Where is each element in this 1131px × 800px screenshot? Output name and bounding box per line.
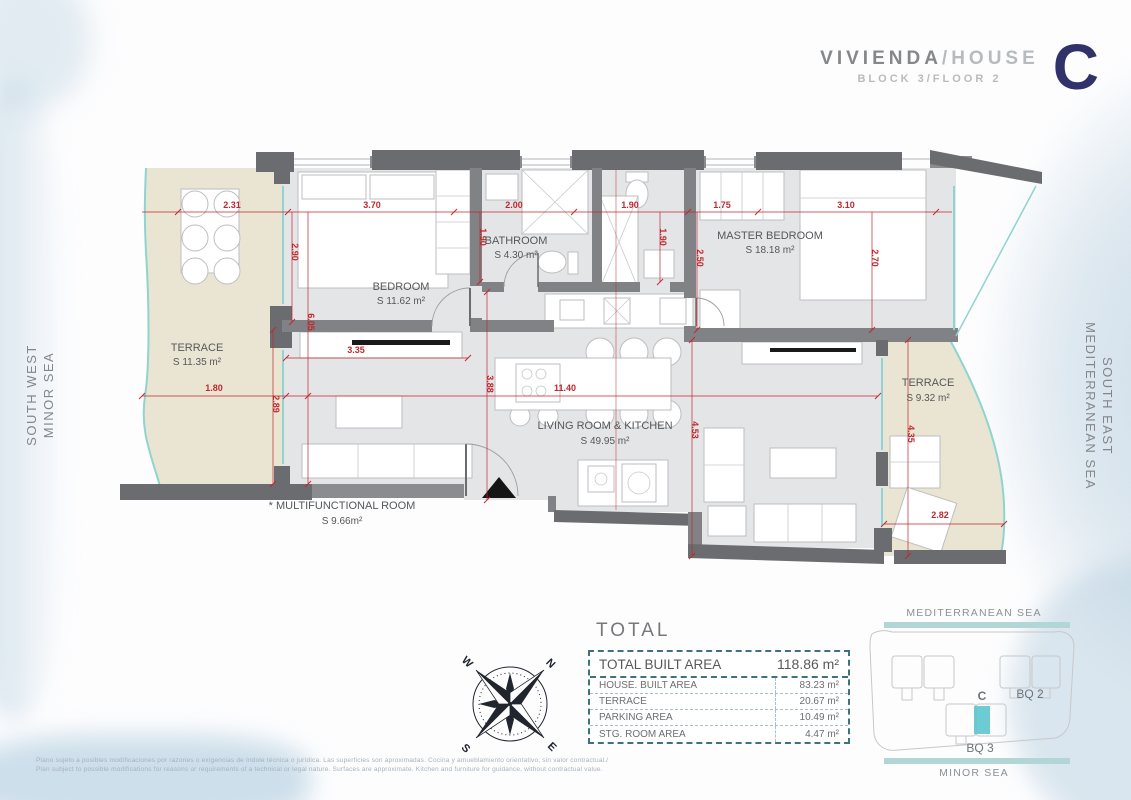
dim-master-w2: 3.10 xyxy=(837,200,855,210)
dim-terrace-l-w2: 1.80 xyxy=(205,383,223,393)
bathroom-label: BATHROOM xyxy=(485,235,548,247)
parking-area-value: 10.49 m² xyxy=(775,710,839,725)
total-built-area-value: 118.86 m² xyxy=(777,656,839,672)
map-block3-label: BQ 3 xyxy=(966,741,994,755)
bedroom-bed xyxy=(298,172,448,288)
dim-terrace-r-w: 2.82 xyxy=(931,510,949,520)
dim-master-h2: 2.70 xyxy=(870,249,880,267)
disclaimer-line-en: Plan subject to possible modifications f… xyxy=(36,765,696,774)
map-top-sea-label: MEDITERRANEAN SEA xyxy=(906,607,1041,619)
compass-west-label: W xyxy=(459,654,475,670)
dim-bedroom-h: 2.90 xyxy=(290,243,300,261)
dim-multi-h: 2.89 xyxy=(271,395,281,413)
storage-area-label: STG. ROOM AREA xyxy=(599,729,686,740)
kitchen-counter xyxy=(545,294,693,328)
living-sideboard xyxy=(742,342,862,364)
dim-hall-h: 1.90 xyxy=(658,228,668,246)
compass-north-label: N xyxy=(543,657,557,671)
bedroom-wardrobe xyxy=(436,170,470,274)
map-unit-label: C xyxy=(978,689,987,703)
disclaimer-line-es: Plano sujeto a posibles modificaciones p… xyxy=(36,756,696,765)
dim-master-h1: 2.50 xyxy=(695,249,705,267)
dim-hall-w: 1.90 xyxy=(621,200,639,210)
disclaimer: Plano sujeto a posibles modificaciones p… xyxy=(36,756,696,774)
map-bottom-sea-label: MINOR SEA xyxy=(939,767,1009,779)
dim-shelf-w: 3.35 xyxy=(347,345,365,355)
terrace-left-area-label: S 11.35 m² xyxy=(173,357,222,368)
map-block2-label: BQ 2 xyxy=(1016,687,1044,701)
house-built-area-row: HOUSE. BUILT AREA 83.23 m² xyxy=(590,678,848,694)
living-room-label: LIVING ROOM & KITCHEN xyxy=(537,420,672,432)
dim-terrace-w: 2.31 xyxy=(223,200,241,210)
site-location-map: MEDITERRANEAN SEA C BQ 2 BQ 3 MINOR SEA xyxy=(858,600,1098,800)
house-built-area-label: HOUSE. BUILT AREA xyxy=(599,680,697,691)
map-top-sea-bar xyxy=(884,622,1070,628)
master-bedroom-label: MASTER BEDROOM xyxy=(717,230,823,242)
terrace-right-area-label: S 9.32 m² xyxy=(906,393,950,404)
house-built-area-value: 83.23 m² xyxy=(775,678,839,693)
living-room-area-label: S 49.95 m² xyxy=(581,436,631,447)
parking-area-label: PARKING AREA xyxy=(599,712,673,723)
bedroom-area-label: S 11.62 m² xyxy=(377,296,426,307)
parking-area-row: PARKING AREA 10.49 m² xyxy=(590,710,848,726)
terrace-area-label: TERRACE xyxy=(599,696,647,707)
storage-area-row: STG. ROOM AREA 4.47 m² xyxy=(590,726,848,742)
terrace-right-label: TERRACE xyxy=(902,377,955,389)
totals-heading: TOTAL xyxy=(596,620,850,642)
floor-plan-page: VIVIENDA/HOUSE BLOCK 3/FLOOR 2 C SOUTH W… xyxy=(0,0,1131,800)
storage-area-value: 4.47 m² xyxy=(775,726,839,742)
diagonal-glass-edge xyxy=(956,186,1036,336)
dim-living-w: 11.40 xyxy=(554,383,576,393)
compass-south-label: S xyxy=(459,742,473,756)
terrace-area-row: TERRACE 20.67 m² xyxy=(590,694,848,710)
bathroom-area-label: S 4.30 m² xyxy=(494,250,538,261)
totals-section: TOTAL TOTAL BUILT AREA 118.86 m² HOUSE. … xyxy=(588,620,850,744)
total-built-area-row: TOTAL BUILT AREA 118.86 m² xyxy=(590,652,848,678)
bedroom-sideboard xyxy=(300,332,462,358)
terrace-area-value: 20.67 m² xyxy=(775,694,839,709)
compass-east-label: E xyxy=(545,740,559,754)
dim-living-h1: 3.88 xyxy=(485,375,495,393)
bedroom-label: BEDROOM xyxy=(373,281,430,293)
map-bottom-sea-bar xyxy=(884,758,1070,764)
totals-table: TOTAL BUILT AREA 118.86 m² HOUSE. BUILT … xyxy=(588,650,850,744)
dim-master-w1: 1.75 xyxy=(713,200,731,210)
dim-bedroom-w: 3.70 xyxy=(363,200,381,210)
terrace-left-label: TERRACE xyxy=(171,342,224,354)
dim-terrace-l-h: 6.05 xyxy=(306,313,316,331)
compass-rose: N E S W xyxy=(440,634,580,774)
dim-living-h2: 4.53 xyxy=(690,421,700,439)
multifunctional-room-area-label: S 9.66m² xyxy=(322,516,363,527)
multifunctional-room-label: * MULTIFUNCTIONAL ROOM xyxy=(269,500,416,512)
dim-bath-w: 2.00 xyxy=(505,200,523,210)
master-bedroom-area-label: S 18.18 m² xyxy=(746,245,796,256)
highlighted-unit xyxy=(974,706,990,734)
total-built-area-label: TOTAL BUILT AREA xyxy=(599,657,721,672)
dim-terrace-r-h: 4.35 xyxy=(906,425,916,443)
master-wardrobe xyxy=(700,172,784,220)
laundry-area xyxy=(578,460,668,506)
